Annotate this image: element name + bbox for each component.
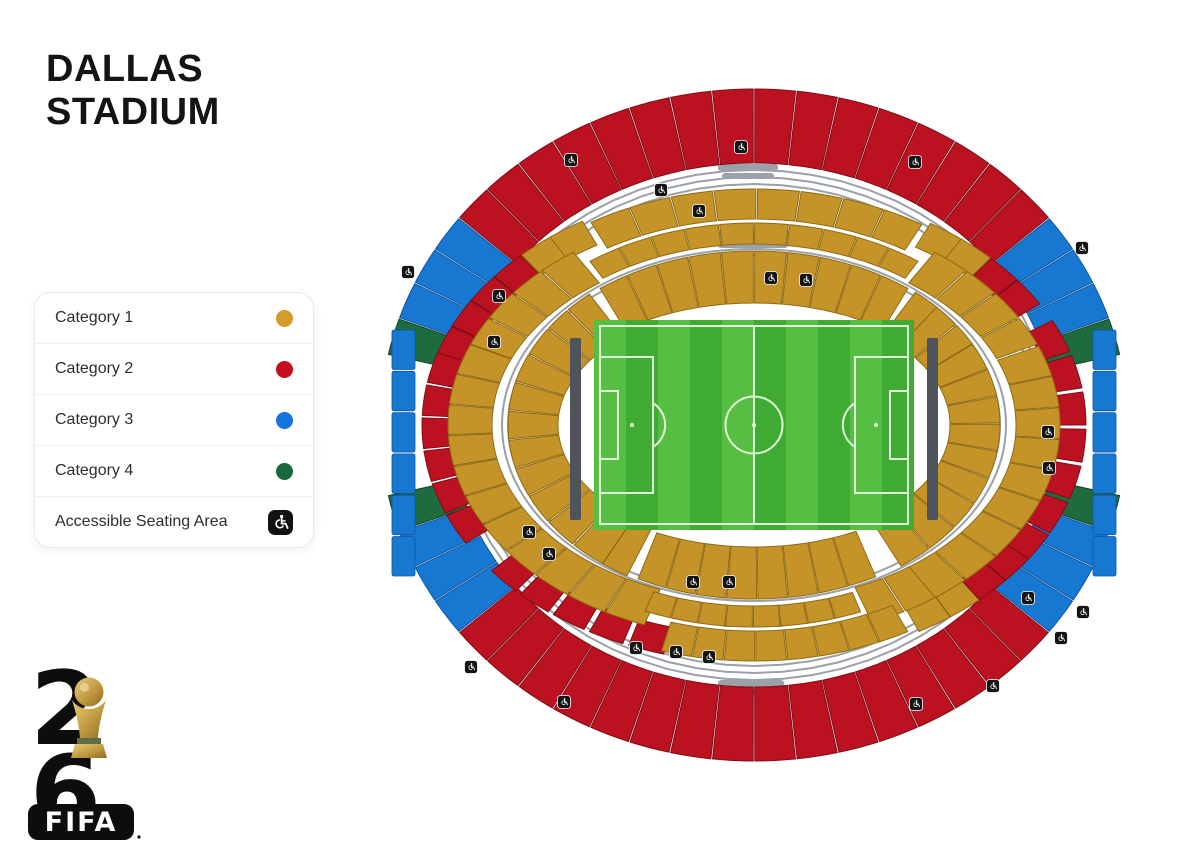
page-title-line2: STADIUM: [46, 91, 220, 134]
soccer-pitch: [594, 320, 914, 530]
section-426[interactable]: [1093, 371, 1116, 411]
accessible-seat-icon: [723, 576, 736, 589]
legend-label: Category 4: [55, 462, 133, 480]
category-1-dot: [276, 310, 293, 327]
legend-item-accessible: Accessible Seating Area: [35, 497, 313, 547]
legend-label: Accessible Seating Area: [55, 513, 228, 531]
accessible-seat-icon: [1043, 462, 1056, 475]
bench-wall-right: [927, 338, 938, 520]
section-C208[interactable]: [685, 225, 721, 250]
legend-item-category-2: Category 2: [35, 344, 313, 395]
section-C209[interactable]: [720, 223, 754, 245]
section-443[interactable]: [713, 685, 754, 761]
accessible-seat-icon: [765, 272, 778, 285]
accessible-seat-icon: [465, 661, 478, 674]
legend-label: Category 1: [55, 309, 133, 327]
section-C110[interactable]: [721, 251, 753, 304]
page-title-line1: DALLAS: [46, 48, 220, 91]
legend-card: Category 1 Category 2 Category 3 Categor…: [34, 292, 314, 548]
seating-map-page: DALLAS STADIUM Category 1 Category 2 Cat…: [0, 0, 1200, 855]
section-457[interactable]: [392, 454, 415, 494]
section-C234[interactable]: [779, 603, 808, 626]
accessible-seat-icon: [402, 266, 415, 279]
section-455[interactable]: [392, 537, 415, 577]
section-458[interactable]: [392, 413, 415, 453]
section-C310[interactable]: [714, 189, 756, 221]
fifa-wordmark: FIFA: [45, 807, 118, 838]
trademark-dot: [137, 835, 140, 838]
accessible-seating-icon: [268, 510, 293, 535]
section-348[interactable]: [422, 418, 452, 449]
section-C211[interactable]: [787, 225, 823, 250]
accessible-seat-icon: [735, 141, 748, 154]
section-C336[interactable]: [756, 630, 787, 661]
legend-item-category-1: Category 1: [35, 293, 313, 344]
accessible-seat-icon: [703, 651, 716, 664]
stadium-svg: [366, 80, 1146, 792]
section-425[interactable]: [1093, 330, 1116, 370]
concourse-sign: [718, 164, 778, 171]
section-C232[interactable]: [829, 592, 861, 618]
accessible-seat-icon: [1042, 426, 1055, 439]
accessible-seat-icon: [910, 698, 923, 711]
section-248[interactable]: [448, 405, 493, 435]
accessible-seat-icon: [558, 696, 571, 709]
section-429[interactable]: [1093, 495, 1116, 535]
accessible-seat-icon: [523, 526, 536, 539]
category-3-dot: [276, 412, 293, 429]
section-460[interactable]: [392, 330, 415, 370]
section-427[interactable]: [1093, 413, 1116, 453]
legend-item-category-3: Category 3: [35, 395, 313, 446]
section-148[interactable]: [508, 411, 559, 439]
section-428[interactable]: [1093, 454, 1116, 494]
section-C236[interactable]: [726, 605, 753, 627]
page-title: DALLAS STADIUM: [46, 48, 220, 133]
section-C212[interactable]: [819, 230, 857, 257]
accessible-seat-icon: [687, 576, 700, 589]
section-C311[interactable]: [757, 189, 799, 221]
section-C312[interactable]: [796, 192, 842, 228]
section-C337[interactable]: [724, 630, 755, 661]
section-C207[interactable]: [652, 230, 690, 257]
accessible-seat-icon: [909, 156, 922, 169]
accessible-seat-icon: [565, 154, 578, 167]
section-C136[interactable]: [727, 546, 757, 599]
section-430[interactable]: [1093, 537, 1116, 577]
section-C210[interactable]: [755, 223, 789, 245]
legend-item-category-4: Category 4: [35, 446, 313, 497]
section-456[interactable]: [392, 495, 415, 535]
accessible-seat-icon: [493, 290, 506, 303]
section-413[interactable]: [755, 89, 796, 165]
section-C235[interactable]: [753, 605, 780, 627]
accessible-seat-icon: [987, 680, 1000, 693]
accessible-seat-icon: [1022, 592, 1035, 605]
section-C237[interactable]: [698, 602, 727, 626]
category-2-dot: [276, 361, 293, 378]
accessible-seat-icon: [670, 646, 683, 659]
accessible-seat-icon: [488, 336, 501, 349]
section-C135[interactable]: [757, 546, 787, 599]
accessible-seat-icon: [543, 548, 556, 561]
category-4-dot: [276, 463, 293, 480]
section-442[interactable]: [755, 685, 796, 761]
accessible-seat-icon: [655, 184, 668, 197]
fifa-wc26-logo: 2 6 FIFA: [28, 664, 148, 846]
accessible-seat-icon: [1077, 606, 1090, 619]
legend-label: Category 2: [55, 360, 133, 378]
legend-label: Category 3: [55, 411, 133, 429]
section-412[interactable]: [713, 89, 754, 165]
section-C335[interactable]: [785, 627, 819, 660]
accessible-seat-icon: [630, 642, 643, 655]
concourse-sign: [722, 173, 774, 179]
accessible-seat-icon: [1055, 632, 1068, 645]
bench-wall-left: [570, 338, 581, 520]
accessible-seat-icon: [693, 205, 706, 218]
accessible-seat-icon: [1076, 242, 1089, 255]
stadium-map: [366, 80, 1146, 792]
section-459[interactable]: [392, 371, 415, 411]
accessible-seat-icon: [800, 274, 813, 287]
